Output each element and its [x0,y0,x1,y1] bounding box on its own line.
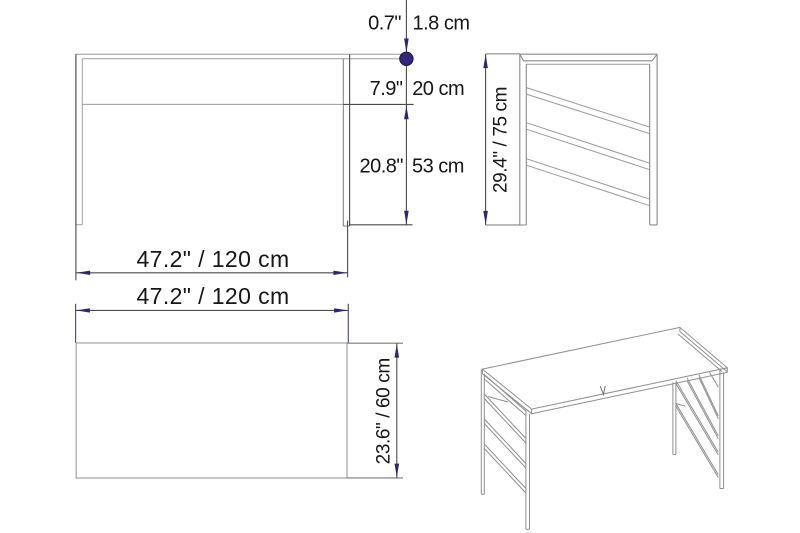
svg-text:1.8 cm: 1.8 cm [413,12,470,34]
svg-text:29.4" / 75 cm: 29.4" / 75 cm [491,87,512,193]
svg-text:20 cm: 20 cm [412,78,464,100]
svg-text:47.2" / 120 cm: 47.2" / 120 cm [136,246,289,272]
svg-text:47.2" / 120 cm: 47.2" / 120 cm [136,283,289,309]
svg-text:20.8": 20.8" [359,156,403,178]
svg-text:23.6" / 60 cm: 23.6" / 60 cm [373,358,394,464]
svg-text:53 cm: 53 cm [412,156,464,178]
svg-text:7.9": 7.9" [370,78,403,100]
svg-text:0.7": 0.7" [368,12,401,34]
